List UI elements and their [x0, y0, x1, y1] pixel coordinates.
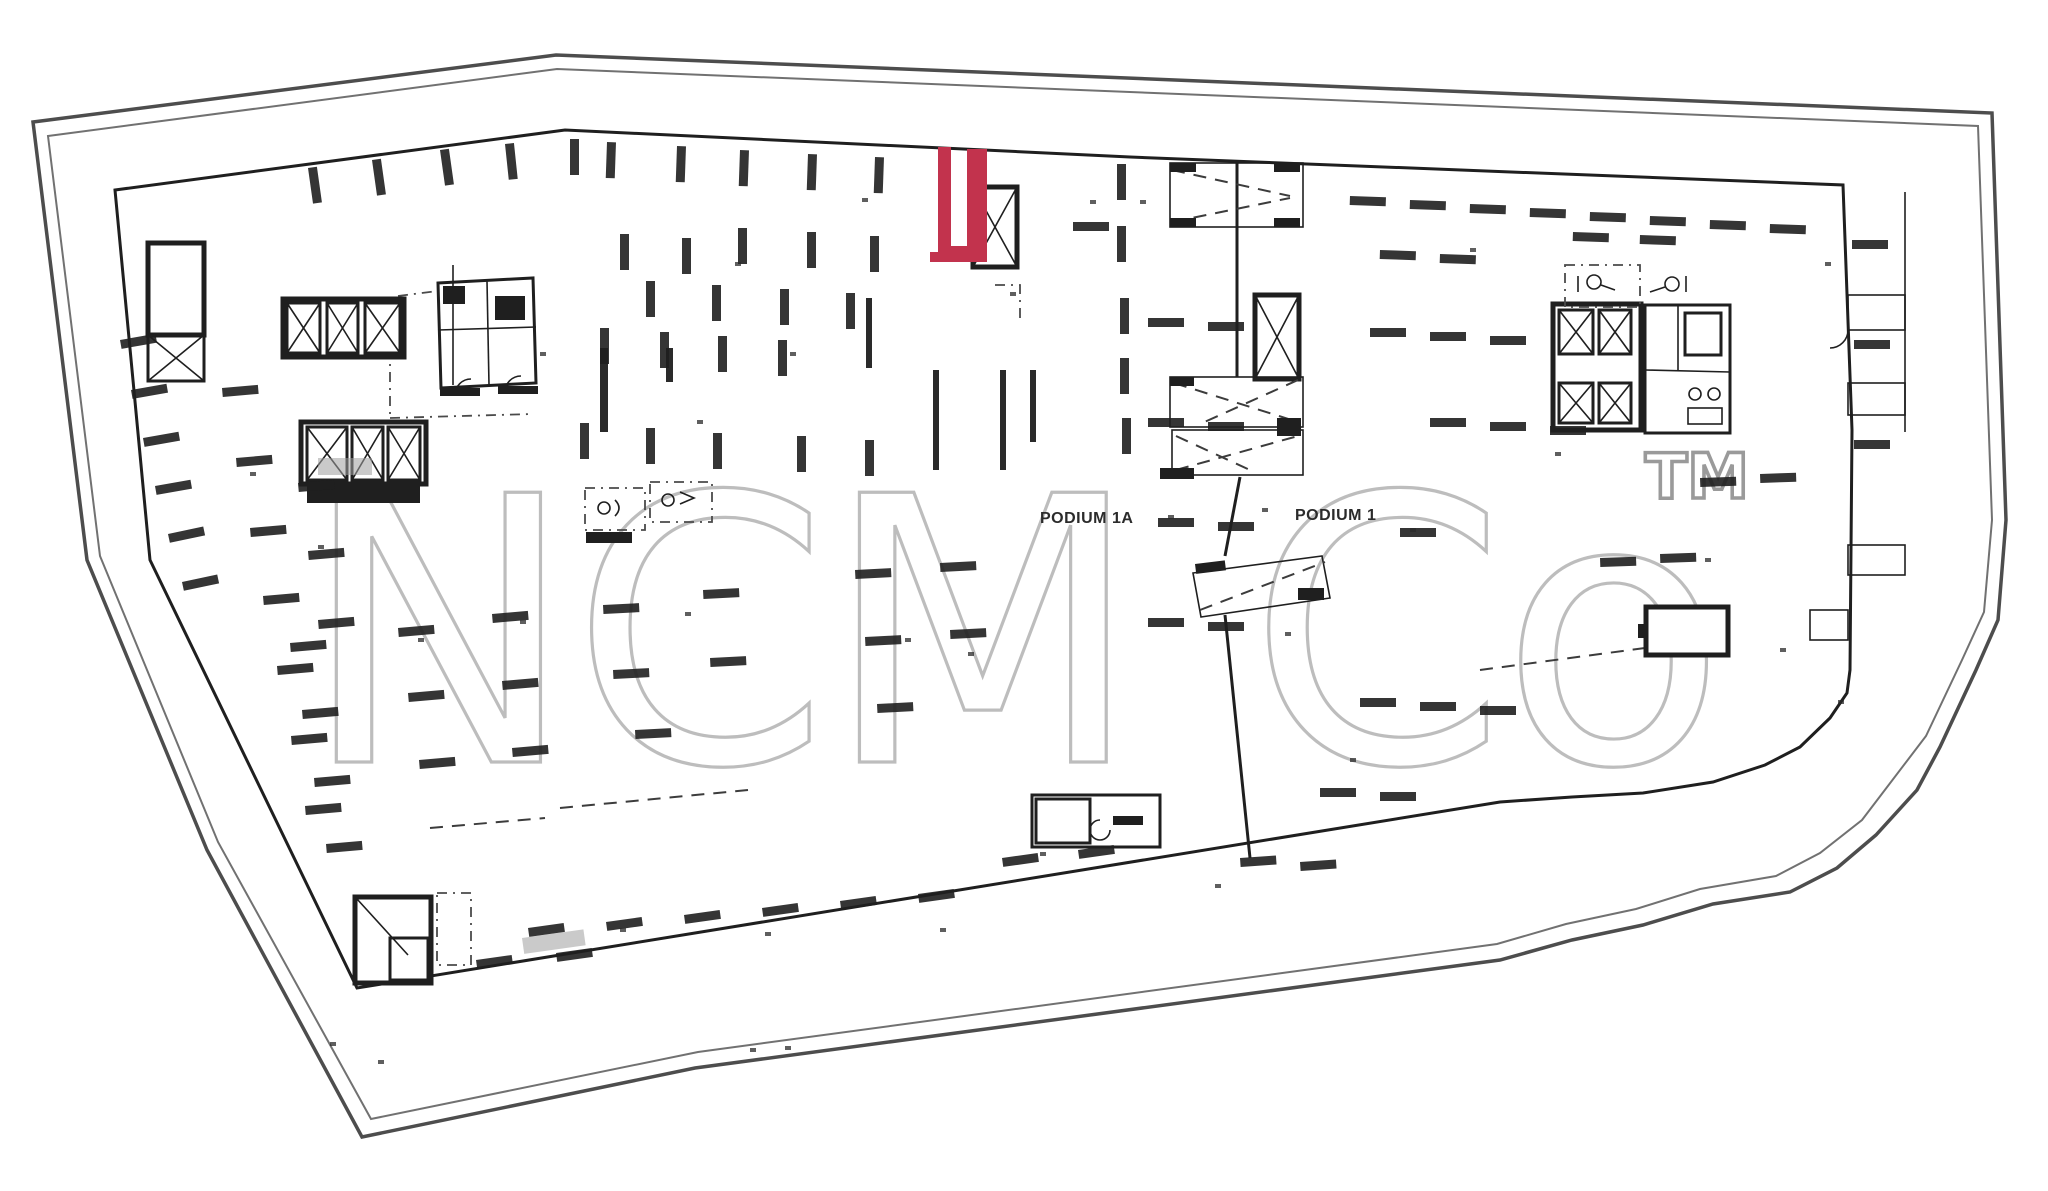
stall-mark — [1000, 370, 1006, 470]
stall-mark — [950, 628, 986, 639]
stall-mark — [666, 348, 673, 382]
stall-mark — [765, 932, 771, 936]
stall-mark — [418, 638, 424, 642]
stall-mark — [1240, 855, 1277, 866]
stall-mark — [1030, 370, 1036, 442]
stall-mark — [143, 432, 180, 447]
stall-mark — [1208, 322, 1244, 331]
stall-mark — [778, 340, 787, 376]
stall-mark — [712, 285, 721, 321]
stall-mark — [1470, 248, 1476, 252]
stall-mark — [1838, 700, 1844, 704]
stall-mark — [236, 455, 273, 467]
stall-mark — [905, 638, 911, 642]
stall-mark — [168, 527, 205, 543]
stall-mark — [540, 352, 546, 356]
label-podium-1a: PODIUM 1A — [1040, 510, 1133, 527]
stall-mark — [710, 656, 746, 667]
stall-mark — [1117, 226, 1126, 262]
stall-mark — [330, 1042, 336, 1046]
stall-mark — [1490, 336, 1526, 345]
stall-mark — [1148, 418, 1184, 427]
stall-mark — [131, 384, 168, 399]
stall-mark — [646, 428, 655, 464]
stall-mark — [580, 423, 589, 459]
stall-mark — [263, 593, 300, 605]
stall-mark — [1090, 200, 1096, 204]
stall-mark — [635, 728, 671, 739]
stall-mark — [318, 545, 324, 549]
stall-mark — [1590, 212, 1626, 222]
stall-mark — [308, 167, 322, 204]
stall-mark — [1705, 558, 1711, 562]
stall-mark — [1400, 528, 1436, 537]
stall-mark — [378, 1060, 384, 1064]
stall-mark — [780, 289, 789, 325]
stall-mark — [713, 433, 722, 469]
stall-mark — [1480, 706, 1516, 715]
stall-mark — [676, 146, 686, 182]
stall-mark — [222, 385, 259, 397]
stall-mark — [785, 1046, 791, 1050]
stall-mark — [1208, 422, 1244, 431]
stall-mark — [1410, 200, 1446, 210]
stall-mark — [877, 702, 913, 713]
stall-mark — [933, 370, 939, 470]
stall-mark — [1350, 196, 1386, 206]
stall-mark — [1854, 340, 1890, 349]
stall-mark — [1148, 618, 1184, 627]
stall-mark — [1430, 418, 1466, 427]
elevator-bank-west-lower — [301, 422, 426, 503]
stall-mark — [250, 472, 256, 476]
stall-mark — [807, 154, 817, 190]
stall-mark — [1370, 328, 1406, 337]
stall-mark — [1530, 208, 1566, 218]
stall-mark — [862, 198, 868, 202]
stall-mark — [1158, 518, 1194, 527]
stall-mark — [1420, 702, 1456, 711]
stall-mark — [870, 236, 879, 272]
stall-mark — [1148, 318, 1184, 327]
stall-mark — [1600, 557, 1636, 567]
stall-mark — [1002, 853, 1039, 867]
stall-mark — [866, 298, 872, 368]
stall-mark — [1380, 792, 1416, 801]
stall-mark — [1300, 859, 1337, 870]
stall-mark — [1550, 426, 1586, 435]
watermark-text: NCM Co — [300, 420, 1721, 850]
stall-mark — [606, 142, 616, 178]
stall-mark — [1208, 622, 1244, 631]
stall-mark — [1122, 418, 1131, 454]
elevator-core-east — [1553, 265, 1686, 430]
stall-mark — [738, 228, 747, 264]
stall-mark — [968, 652, 974, 656]
stall-mark — [1360, 698, 1396, 707]
stall-mark — [1262, 508, 1268, 512]
stall-mark — [1770, 224, 1806, 234]
stall-mark — [1440, 254, 1476, 264]
stall-mark — [1073, 222, 1109, 231]
stall-mark — [440, 149, 454, 186]
stall-mark — [1010, 292, 1016, 296]
stall-mark — [762, 903, 799, 917]
stall-mark — [1140, 200, 1146, 204]
stall-mark — [600, 348, 608, 432]
label-podium-1: PODIUM 1 — [1295, 507, 1376, 524]
stall-mark — [505, 143, 518, 180]
stall-mark — [1410, 528, 1416, 532]
stall-mark — [570, 139, 579, 175]
stall-mark — [1780, 648, 1786, 652]
stall-mark — [1430, 332, 1466, 341]
stall-mark — [1852, 240, 1888, 249]
stall-mark — [1120, 298, 1129, 334]
stall-mark — [372, 159, 386, 196]
stall-mark — [1168, 515, 1174, 519]
stall-mark — [1350, 758, 1356, 762]
stall-mark — [735, 262, 741, 266]
stall-mark — [1218, 522, 1254, 531]
stall-mark — [750, 1048, 756, 1052]
stall-mark — [155, 480, 192, 495]
stall-mark — [685, 612, 691, 616]
stall-mark — [1490, 422, 1526, 431]
stair-core-east — [1638, 607, 1728, 655]
elevator-bank-west-upper — [283, 299, 404, 357]
stall-mark — [940, 561, 976, 572]
stall-mark — [703, 588, 739, 599]
stall-mark — [807, 232, 816, 268]
stall-mark — [739, 150, 749, 186]
stall-mark — [846, 293, 855, 329]
stall-mark — [1650, 216, 1686, 226]
service-rooms-east — [1645, 305, 1730, 433]
stall-mark — [684, 910, 721, 924]
stall-mark — [556, 948, 593, 962]
stall-mark — [1700, 477, 1736, 487]
stall-mark — [1854, 440, 1890, 449]
highlighted-unit[interactable] — [930, 147, 987, 262]
stall-mark — [682, 238, 691, 274]
stair-core-centre — [1255, 295, 1299, 379]
stall-mark — [120, 334, 157, 349]
stall-mark — [1760, 473, 1796, 483]
stall-mark — [790, 352, 796, 356]
stall-mark — [1710, 220, 1746, 230]
stall-mark — [865, 635, 901, 646]
stall-mark — [1120, 358, 1129, 394]
stall-mark — [620, 234, 629, 270]
floor-plan-drawing: NCM Co TM — [0, 0, 2048, 1191]
floor-plan-scan: NCM Co TM — [0, 0, 2048, 1191]
stall-mark — [940, 928, 946, 932]
stall-mark — [646, 281, 655, 317]
stall-mark — [797, 436, 806, 472]
stall-mark — [718, 336, 727, 372]
trademark-text: TM — [1645, 440, 1749, 513]
stair-core-northwest — [148, 243, 204, 381]
stall-mark — [1285, 632, 1291, 636]
stall-mark — [1660, 553, 1696, 563]
stall-mark — [874, 157, 884, 193]
stall-mark — [620, 928, 626, 932]
stall-mark — [1470, 204, 1506, 214]
stall-mark — [1215, 884, 1221, 888]
stall-mark — [1825, 262, 1831, 266]
stall-mark — [603, 603, 639, 614]
stall-mark — [1117, 164, 1126, 200]
stall-mark — [1040, 852, 1046, 856]
stall-mark — [182, 575, 219, 591]
stall-mark — [855, 568, 891, 579]
stall-mark — [250, 525, 287, 537]
watermark: NCM Co TM — [300, 420, 1749, 850]
stall-mark — [697, 420, 703, 424]
stall-mark — [865, 440, 874, 476]
stall-mark — [1320, 788, 1356, 797]
stall-mark — [1380, 250, 1416, 260]
stall-mark — [520, 620, 526, 624]
stall-mark — [1555, 452, 1561, 456]
stall-mark — [918, 889, 955, 903]
stall-mark — [1640, 235, 1676, 245]
stall-mark — [613, 668, 649, 679]
stall-mark — [1573, 232, 1609, 242]
